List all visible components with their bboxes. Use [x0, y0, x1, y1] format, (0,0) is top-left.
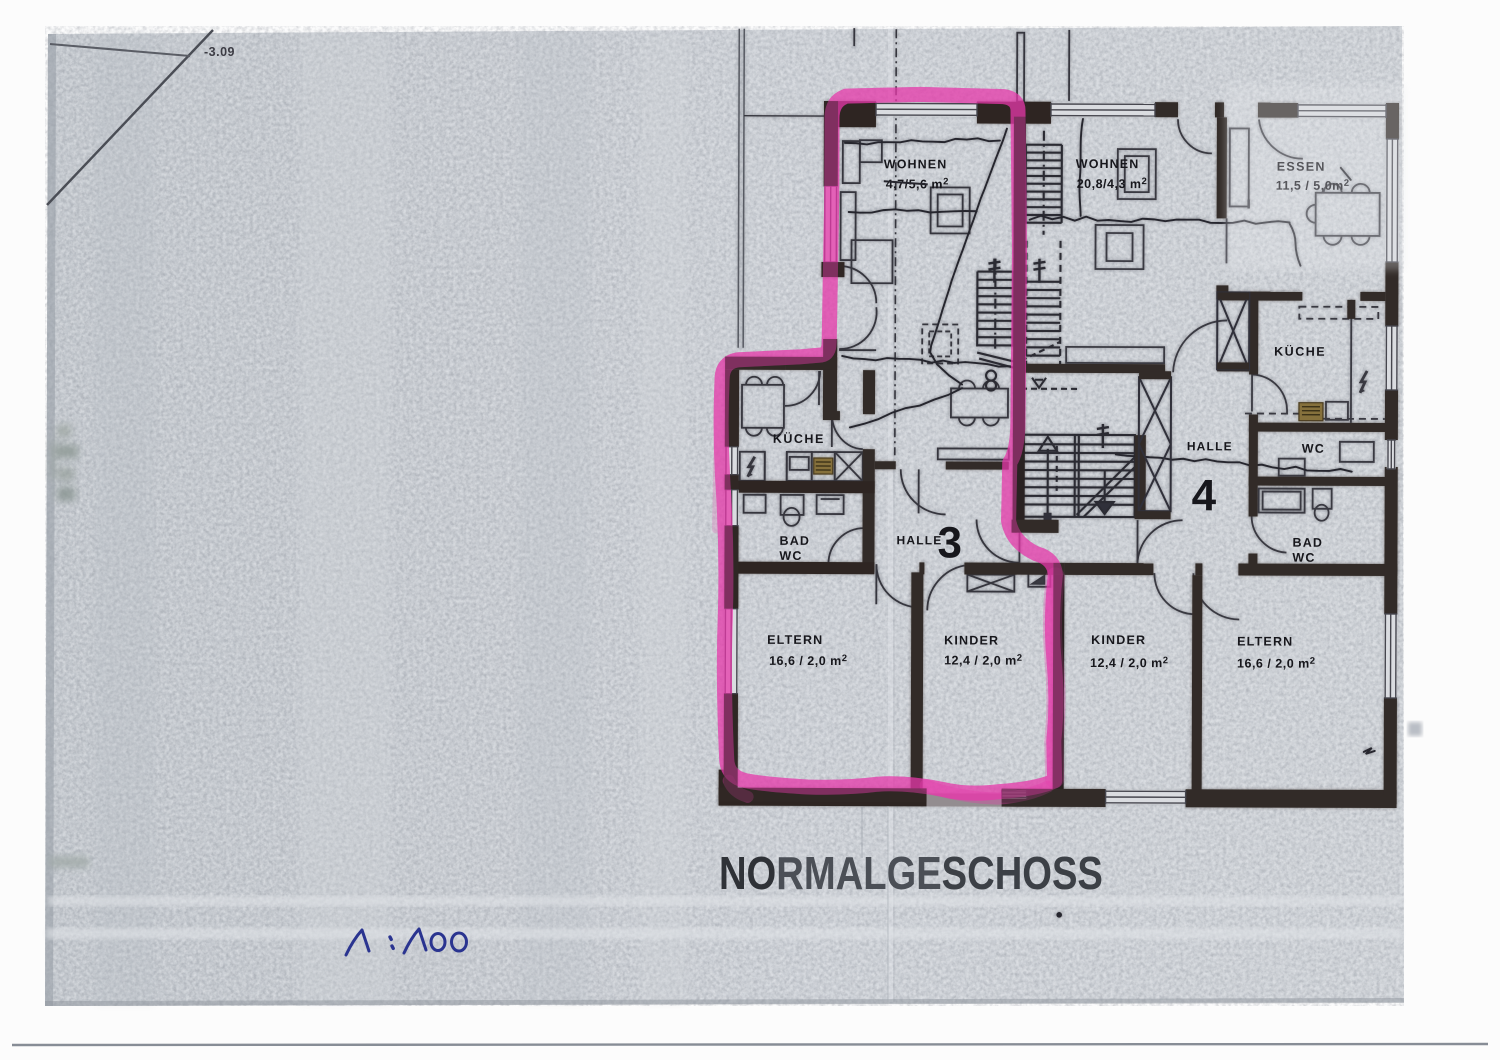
svg-text:12,4 / 2,0 m2: 12,4 / 2,0 m2 [1090, 655, 1169, 670]
svg-text:3: 3 [937, 518, 962, 567]
svg-text:16,6 / 2,0 m2: 16,6 / 2,0 m2 [769, 653, 848, 668]
svg-text:WOHNEN: WOHNEN [884, 157, 948, 171]
svg-text:KÜCHE: KÜCHE [773, 431, 825, 446]
svg-text:BAD: BAD [1292, 536, 1323, 550]
svg-text:HALLE: HALLE [1187, 439, 1233, 453]
svg-text:WC: WC [779, 549, 802, 563]
svg-text:HALLE: HALLE [896, 533, 942, 547]
svg-text:WC: WC [1302, 442, 1325, 456]
svg-text:KINDER: KINDER [944, 633, 999, 647]
svg-text:BAD: BAD [779, 534, 810, 548]
svg-text:WC: WC [1292, 551, 1315, 565]
svg-text:KINDER: KINDER [1091, 633, 1146, 647]
svg-text:4: 4 [1192, 471, 1217, 520]
svg-text:ELTERN: ELTERN [1237, 634, 1293, 648]
svg-text:-3.09: -3.09 [204, 45, 235, 59]
svg-text:16,6 / 2,0 m2: 16,6 / 2,0 m2 [1237, 655, 1316, 670]
svg-text:ELTERN: ELTERN [767, 633, 823, 647]
svg-text:WOHNEN: WOHNEN [1076, 157, 1140, 171]
svg-text:NORMALGESCHOSS: NORMALGESCHOSS [719, 848, 1103, 899]
svg-text:KÜCHE: KÜCHE [1274, 344, 1326, 359]
svg-text:20,8/4,3 m2: 20,8/4,3 m2 [1077, 176, 1148, 191]
svg-text:12,4 / 2,0 m2: 12,4 / 2,0 m2 [944, 652, 1023, 667]
